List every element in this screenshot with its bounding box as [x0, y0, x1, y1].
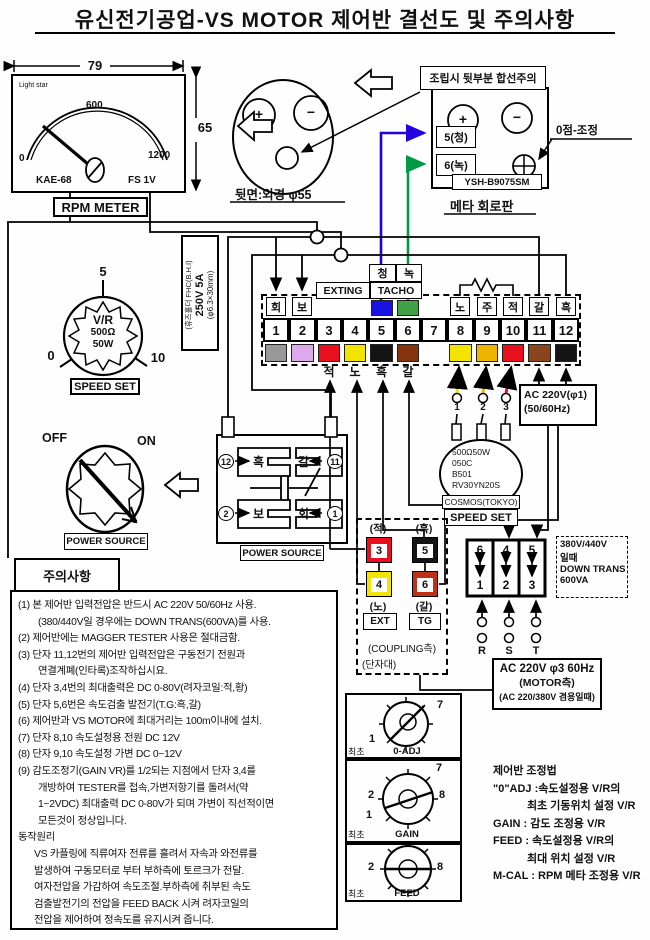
terminal-1: 1 — [263, 318, 289, 342]
title-underline — [35, 32, 615, 34]
rpm-meter-label: RPM METER — [53, 197, 148, 217]
rst-col1-bot: 1 — [470, 578, 490, 592]
adjust-line: "0"ADJ :속도설정용 V/R의 — [493, 781, 641, 799]
pot-speed-set-label: SPEED SET — [444, 509, 518, 526]
rst-col2-bot: 2 — [496, 578, 516, 592]
adjust-line: 최대 위치 설정 V/R — [493, 851, 641, 869]
relay-n12: 12 — [218, 454, 234, 469]
trans-line1: 380V/440V — [557, 537, 627, 550]
note-line: (1) 본 제어반 입력전압은 반드시 AC 220V 50/60Hz 사용. — [18, 598, 334, 615]
terminal-12: 12 — [553, 318, 579, 342]
note-line: 동작원리 — [18, 830, 334, 847]
k2-min-label: 최초 — [348, 828, 365, 841]
rear-minus: − — [303, 104, 319, 120]
coupling-terminal-3: 3 — [366, 537, 392, 563]
strip-pad-3 — [318, 344, 340, 362]
down-trans-box: 380V/440V 일때 DOWN TRANS 600VA — [556, 536, 628, 598]
note-line: (6) 제어반과 VS MOTOR에 최대거리는 100m이내에 설치. — [18, 714, 334, 731]
tacho-label: TACHO — [370, 282, 422, 299]
note-line: 개방하여 TESTER를 접속,가변저항기를 돌려서(약 — [18, 781, 334, 798]
strip-top-8: 노 — [450, 297, 470, 316]
adjust-method-text: 제어반 조정법 "0"ADJ :속도설정용 V/R의 최초 기동위치 설정 V/… — [493, 763, 641, 886]
terminal-6: 6 — [395, 318, 421, 342]
strip-pad-top-6 — [397, 300, 419, 316]
coupling-caption-2: (단자대) — [362, 656, 396, 671]
strip-pad-11 — [528, 344, 551, 362]
vr-scale-0: 0 — [44, 348, 58, 363]
speed-set-label: SPEED SET — [70, 378, 140, 395]
adjust-line: FEED : 속도설정용 V/R의 — [493, 833, 641, 851]
dim-width-label: 79 — [82, 58, 108, 73]
page-title: 유신전기공업-VS MOTOR 제어반 결선도 및 주의사항 — [0, 4, 650, 34]
adjust-line: M-CAL : RPM 메타 조정용 V/R — [493, 868, 641, 886]
relay-bo: 보 — [253, 505, 264, 522]
strip-pad-1 — [265, 344, 287, 362]
relay-n2: 2 — [218, 506, 234, 521]
coupling-4-num: 4 — [371, 578, 387, 592]
k1-tick-7: 7 — [437, 699, 443, 711]
coupling-caption-1: (COUPLING측) — [358, 640, 446, 655]
fuse-line2: 250V 5A — [194, 237, 206, 353]
phase-r-label: R — [475, 645, 489, 657]
strip-pad-4 — [344, 344, 366, 362]
exting-label: EXTING — [316, 282, 370, 299]
adjust-line: GAIN : 감도 조정용 V/R — [493, 816, 641, 834]
pot-line4: RV30YN20S — [452, 480, 500, 490]
relay-power-source-label: POWER SOURCE — [240, 545, 324, 561]
terminal-9: 9 — [474, 318, 500, 342]
strip-top-12: 흑 — [556, 297, 576, 316]
note-line: 여자전압을 가감하여 속도조절.부하측에 취부된 속도 — [18, 880, 334, 897]
note-line: 1~2VDC) 최대출력 DC 0-80V가 되며 가변이 직선적이면 — [18, 797, 334, 814]
k1-name: 0-ADJ — [384, 746, 430, 757]
trans-line4: 600VA — [557, 575, 627, 586]
coupling-red-label: (적) — [362, 521, 394, 536]
zero-adjust-label: 0점-조정 — [556, 122, 598, 138]
board-terminal-5: 5(청) — [436, 126, 476, 148]
ac1-line1: AC 220V(φ1) — [521, 386, 595, 401]
switch-off-label: OFF — [42, 431, 67, 445]
k3-tick-2: 2 — [368, 861, 374, 873]
k3-min-label: 최초 — [348, 887, 365, 900]
rear-label: 뒷면:외경 φ55 — [235, 184, 311, 203]
notes-title: 주의사항 — [14, 558, 120, 592]
vr-scale-5: 5 — [96, 264, 110, 279]
board-terminal-6: 6(녹) — [436, 154, 476, 176]
k3-tick-8: 8 — [437, 861, 443, 873]
note-line: (5) 단자 5,6번은 속도검출 발전기(T.G:흑,갈) — [18, 698, 334, 715]
relay-hoe: 회 — [298, 505, 309, 522]
strip-pad-12 — [555, 344, 577, 362]
strip-top-10: 적 — [503, 297, 523, 316]
fuse-holder: (휴즈홀더 FHC(B.H.I) 250V 5A (φ6.3×30mm) — [181, 235, 219, 351]
note-line: (8) 단자 9,10 속도설정 가변 DC 0~12V — [18, 747, 334, 764]
wiring-diagram-page: 유신전기공업-VS MOTOR 제어반 결선도 및 주의사항 79 65 Lig… — [0, 0, 650, 940]
fuse-line1: (휴즈홀더 FHC(B.H.I) — [183, 237, 194, 353]
note-line: VS 카플링에 직류여자 전류를 흘려서 자속과 와전류를 — [18, 847, 334, 864]
wire-no-2: 2 — [478, 402, 488, 413]
vr-ohm: 500Ω — [86, 327, 120, 338]
wire-no-3: 3 — [501, 402, 511, 413]
k1-tick-1: 1 — [369, 733, 375, 745]
strip-bot-3: 적 — [316, 363, 342, 380]
k2-tick-8: 8 — [439, 789, 445, 801]
meter-scale-1200: 1200 — [148, 150, 170, 161]
ext-label: EXT — [363, 613, 397, 630]
adjust-line: 최초 기동위치 설정 V/R — [493, 798, 641, 816]
k2-tick-1: 1 — [366, 809, 372, 821]
ac-single-phase-box: AC 220V(φ1) (50/60Hz) — [519, 384, 597, 426]
note-line: 발생하여 구동모터로 부터 부하측에 토르크가 전달. — [18, 864, 334, 881]
switch-on-label: ON — [137, 434, 156, 448]
ac1-line2: (50/60Hz) — [521, 401, 595, 415]
strip-bot-6: 갈 — [395, 363, 421, 380]
vr-scale-10: 10 — [148, 350, 168, 365]
phase-t-label: T — [529, 645, 543, 657]
meter-scale-0: 0 — [19, 153, 25, 164]
board-model: YSH-B9075SM — [452, 174, 542, 190]
dim-height-label: 65 — [192, 120, 218, 135]
power-switch-dial — [67, 446, 143, 532]
terminal-7: 7 — [421, 318, 447, 342]
strip-bot-5: 흑 — [368, 363, 395, 380]
strip-pad-5 — [370, 344, 393, 362]
pot-line3: B501 — [452, 469, 472, 479]
meter-fs: FS 1V — [128, 175, 156, 186]
terminal-10: 10 — [500, 318, 526, 342]
coupling-black-label: (흑) — [408, 521, 440, 536]
rst-col2-top: 4 — [496, 543, 516, 557]
motor-box: AC 220V φ3 60Hz (MOTOR측) (AC 220/380V 겸용… — [492, 658, 602, 710]
terminal-3: 3 — [316, 318, 342, 342]
note-line: (4) 단자 3,4번의 최대출력은 DC 0-80V(려자코일:적,황) — [18, 681, 334, 698]
meter-model: KAE-68 — [36, 175, 72, 186]
wire-no-1: 1 — [452, 402, 462, 413]
board-plus: + — [455, 111, 471, 127]
tacho-chung-box: 청 — [369, 264, 396, 282]
rpm-meter-outline — [12, 60, 196, 192]
strip-top-11: 갈 — [529, 297, 549, 316]
fuse-line3: (φ6.3×30mm) — [206, 237, 215, 353]
relay-n1: 1 — [327, 506, 343, 521]
rst-col3-top: 5 — [522, 543, 542, 557]
strip-pad-10 — [502, 344, 524, 362]
note-line: (380/440V일 경우에는 DOWN TRANS(600VA)를 사용. — [18, 615, 334, 632]
tg-label: TG — [409, 613, 441, 630]
meter-brand: Light star — [19, 82, 48, 89]
relay-black: 흑 — [253, 453, 264, 470]
adjust-line: 제어반 조정법 — [493, 763, 641, 781]
rst-col3-bot: 3 — [522, 578, 542, 592]
coupling-terminal-6: 6 — [412, 571, 438, 597]
notes-text: (1) 본 제어반 입력전압은 반드시 AC 220V 50/60Hz 사용. … — [18, 598, 334, 930]
k2-tick-2: 2 — [368, 789, 374, 801]
relay-n11: 11 — [327, 454, 343, 469]
strip-pad-8 — [449, 344, 472, 362]
rst-col1-top: 6 — [470, 543, 490, 557]
coupling-terminal-4: 4 — [366, 571, 392, 597]
rear-plus: + — [251, 106, 267, 122]
k2-tick-7: 7 — [436, 762, 442, 774]
coupling-3-num: 3 — [371, 544, 387, 558]
terminal-8: 8 — [447, 318, 474, 342]
pot-line2: 050C — [452, 458, 472, 468]
vr-watt: 50W — [86, 339, 120, 350]
terminal-11: 11 — [526, 318, 553, 342]
note-line: 검출발전기의 전압을 FEED BACK 시켜 려자코일의 — [18, 897, 334, 914]
motor-line1: AC 220V φ3 60Hz — [494, 660, 600, 675]
strip-top-1: 회 — [266, 297, 286, 316]
phase-s-label: S — [502, 645, 516, 657]
coupling-6-num: 6 — [417, 578, 433, 592]
terminal-5: 5 — [368, 318, 395, 342]
coupling-brown-label: (갈) — [408, 599, 440, 614]
note-line: (9) 감도조정기(GAIN VR)를 1/2되는 지점에서 단자 3,4를 — [18, 764, 334, 781]
strip-pad-2 — [291, 344, 314, 362]
terminal-2: 2 — [289, 318, 316, 342]
strip-pad-top-5 — [371, 300, 393, 316]
k1-min-label: 최초 — [348, 745, 365, 758]
power-relay-schematic — [217, 417, 347, 543]
meter-board-label: 메타 회로판 — [450, 196, 513, 215]
strip-top-2: 보 — [292, 297, 312, 316]
terminal-4: 4 — [342, 318, 368, 342]
motor-line2: (MOTOR측) — [494, 675, 600, 690]
note-line: (2) 제어반에는 MAGGER TESTER 사용은 절대금함. — [18, 631, 334, 648]
k2-name: GAIN — [384, 829, 430, 840]
strip-top-9: 주 — [477, 297, 497, 316]
board-minus: − — [509, 109, 525, 125]
k3-name: FEED — [384, 888, 430, 899]
note-line: 전압을 제어하여 정속도를 유지시켜 줍니다. — [18, 913, 334, 930]
tacho-nok-box: 녹 — [396, 264, 422, 282]
note-line: (3) 단자 11,12번의 제어반 입력전압은 구동전기 전원과 — [18, 648, 334, 665]
relay-brown: 갈 — [298, 453, 309, 470]
coupling-yellow-label: (노) — [362, 599, 394, 614]
vr-name: V/R — [88, 313, 118, 327]
note-line: 모든것이 정상입니다. — [18, 814, 334, 831]
motor-line3: (AC 220/380V 겸용일때) — [494, 690, 600, 703]
coupling-5-num: 5 — [417, 544, 433, 558]
trans-line2: 일때 — [557, 550, 627, 564]
strip-bot-4: 노 — [342, 363, 368, 380]
pot-line1: 500Ω50W — [452, 447, 490, 457]
assembly-warning: 조립시 뒷부분 합선주의 — [420, 66, 546, 90]
note-line: 연결계폐(인타록)조작하십시요. — [18, 664, 334, 681]
pot-brand: COSMOS(TOKYO) — [442, 495, 520, 509]
trans-line3: DOWN TRANS — [557, 564, 627, 575]
coupling-terminal-5: 5 — [412, 537, 438, 563]
meter-scale-600: 600 — [86, 100, 103, 111]
strip-pad-9 — [476, 344, 498, 362]
strip-pad-6 — [397, 344, 419, 362]
power-source-label: POWER SOURCE — [64, 533, 148, 550]
note-line: (7) 단자 8,10 속도설정용 전원 DC 12V — [18, 731, 334, 748]
